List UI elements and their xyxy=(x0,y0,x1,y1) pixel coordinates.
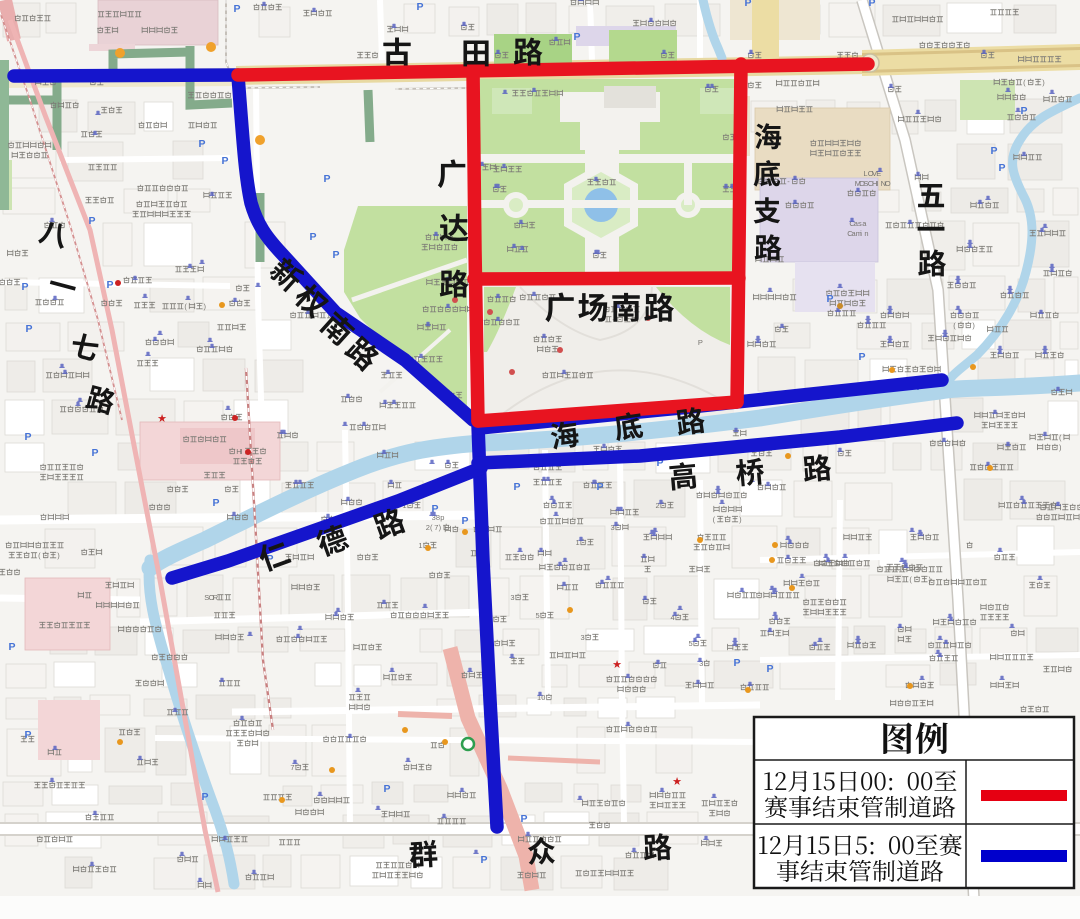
svg-text:P: P xyxy=(233,3,240,15)
svg-text:n: n xyxy=(864,229,868,238)
svg-text:P: P xyxy=(25,323,32,335)
svg-text:p: p xyxy=(440,513,444,522)
svg-text:P: P xyxy=(573,31,580,43)
svg-text:P: P xyxy=(91,447,98,459)
svg-text:P: P xyxy=(106,279,113,291)
svg-text:I: I xyxy=(876,179,878,188)
svg-text:P: P xyxy=(858,351,865,363)
svg-text:P: P xyxy=(309,231,316,243)
svg-text:P: P xyxy=(744,0,751,9)
svg-text:P: P xyxy=(766,663,773,675)
svg-text:I: I xyxy=(241,447,243,456)
svg-text:P: P xyxy=(383,783,390,795)
svg-text:P: P xyxy=(826,293,833,305)
svg-text:1: 1 xyxy=(576,538,580,547)
svg-text:2: 2 xyxy=(656,501,660,510)
svg-text:★: ★ xyxy=(612,659,622,671)
svg-text:P: P xyxy=(520,813,527,825)
svg-text:P: P xyxy=(24,431,31,443)
svg-text:P: P xyxy=(323,173,330,185)
svg-text:P: P xyxy=(21,281,28,293)
svg-text:P: P xyxy=(698,338,703,347)
svg-text:7: 7 xyxy=(290,763,294,772)
svg-text:0: 0 xyxy=(541,693,545,702)
svg-text:P: P xyxy=(198,138,205,150)
svg-text:P: P xyxy=(88,215,95,227)
svg-text:P: P xyxy=(733,657,740,669)
svg-text:P: P xyxy=(221,155,228,167)
svg-text:P: P xyxy=(461,515,468,527)
svg-text:★: ★ xyxy=(672,776,682,788)
svg-text:P: P xyxy=(212,497,219,509)
svg-text:1: 1 xyxy=(418,541,422,550)
svg-text:P: P xyxy=(1020,105,1027,117)
svg-text:P: P xyxy=(201,791,208,803)
svg-text:5: 5 xyxy=(689,639,693,648)
svg-text:P: P xyxy=(24,729,31,741)
svg-text:3: 3 xyxy=(611,523,615,532)
svg-text:P: P xyxy=(332,249,339,261)
svg-text:3: 3 xyxy=(510,593,514,602)
svg-text:O: O xyxy=(885,179,891,188)
svg-text:P: P xyxy=(480,854,487,866)
svg-text:★: ★ xyxy=(157,413,167,425)
svg-text:P: P xyxy=(990,145,997,157)
svg-text:P: P xyxy=(416,1,423,13)
svg-text:P: P xyxy=(868,0,875,9)
svg-text:P: P xyxy=(998,162,1005,174)
svg-text:P: P xyxy=(513,481,520,493)
svg-text:3: 3 xyxy=(581,633,585,642)
svg-text:P: P xyxy=(8,641,15,653)
svg-text:5: 5 xyxy=(536,611,540,620)
